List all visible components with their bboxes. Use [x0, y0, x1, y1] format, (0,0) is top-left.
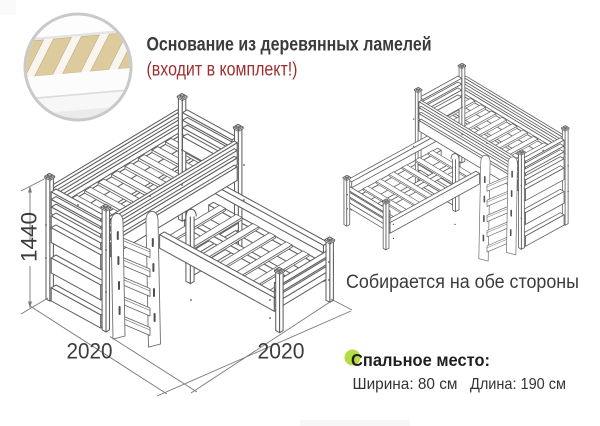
svg-text:Длина: 190 см: Длина: 190 см: [470, 376, 566, 393]
svg-text:Спальное место:: Спальное место:: [351, 350, 490, 370]
svg-text:1440: 1440: [17, 212, 42, 262]
svg-text:2020: 2020: [258, 339, 305, 364]
svg-text:2020: 2020: [67, 339, 113, 364]
svg-text:Ширина: 80 см: Ширина: 80 см: [353, 376, 458, 393]
svg-text:(входит в комплект!): (входит в комплект!): [147, 60, 298, 81]
svg-text:Основание из деревянных ламеле: Основание из деревянных ламелей: [147, 35, 432, 56]
svg-text:Собирается на обе стороны: Собирается на обе стороны: [346, 272, 579, 293]
